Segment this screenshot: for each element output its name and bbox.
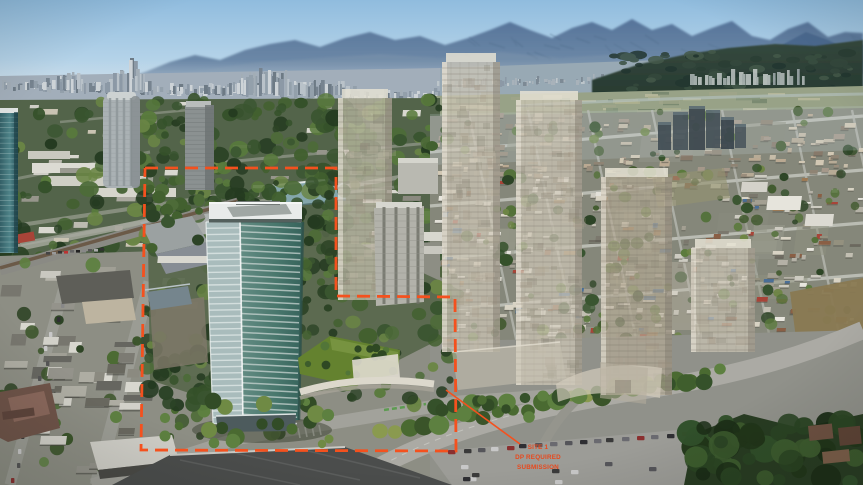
svg-text:SITE 1: SITE 1 [528, 444, 549, 451]
svg-text:DP REQUIRED: DP REQUIRED [515, 454, 561, 461]
svg-text:SUBMISSION: SUBMISSION [517, 464, 559, 471]
